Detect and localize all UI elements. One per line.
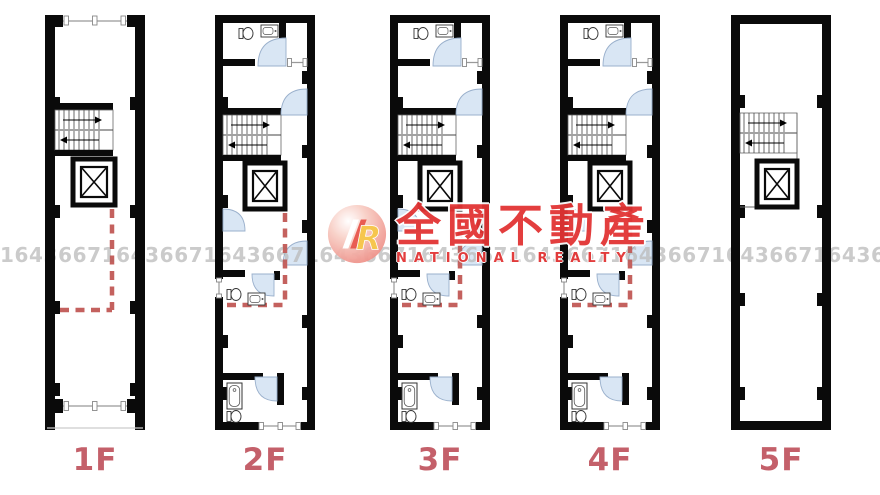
wall-pilaster [647, 145, 652, 158]
toilet-icon [227, 289, 241, 301]
toilet-icon [239, 28, 253, 40]
bathtub-icon [572, 383, 587, 409]
sink-icon [606, 25, 623, 37]
stairs [740, 113, 797, 153]
interior-wall [223, 59, 255, 66]
window-mullion [392, 294, 397, 298]
wall-pilaster [740, 293, 745, 306]
window-marker [288, 59, 308, 67]
interior-wall [398, 270, 420, 277]
window-mullion [392, 278, 397, 282]
door-arc [600, 377, 622, 401]
wall-pilaster [740, 95, 745, 108]
wall-pilaster [398, 335, 403, 348]
interior-wall [223, 270, 245, 277]
wall-pilaster [477, 71, 482, 84]
window-mullion [121, 402, 126, 411]
window-mullion [64, 402, 69, 411]
stairs [398, 115, 456, 155]
wall-pilaster [302, 315, 307, 328]
door-arc [255, 377, 277, 401]
interior-wall [398, 155, 456, 161]
window-marker [604, 423, 646, 430]
interior-wall [619, 271, 625, 280]
interior-wall [622, 373, 629, 405]
window-mullion [562, 278, 567, 282]
window-marker [390, 278, 398, 298]
wall-pilaster [302, 387, 307, 400]
window-mullion [121, 16, 126, 25]
door-arc [433, 38, 461, 66]
window-mullion [296, 423, 301, 430]
brand-name-english: NATIONAL REALTY [396, 251, 651, 266]
interior-wall [454, 23, 461, 38]
interior-wall [274, 271, 280, 280]
wall-pilaster [223, 335, 228, 348]
sink-icon [593, 293, 610, 305]
plan-svg [215, 15, 315, 430]
interior-wall [55, 150, 113, 156]
storefront-window [47, 16, 143, 428]
window-mullion [604, 423, 609, 430]
elevator-icon [757, 161, 797, 207]
interior-wall [568, 59, 600, 66]
watermark-brand: R 全國不動產 NATIONAL REALTY [326, 202, 651, 266]
wall-pilaster [477, 387, 482, 400]
window-mullion [278, 423, 283, 430]
wall-pilaster [647, 71, 652, 84]
wall-pilaster [740, 387, 745, 400]
brand-text: 全國不動產 NATIONAL REALTY [396, 202, 651, 266]
wall-pilaster [55, 383, 60, 396]
door-arc [626, 89, 652, 115]
wall-pilaster [817, 293, 822, 306]
toilet-icon [402, 289, 416, 301]
wall-pilaster [130, 301, 135, 314]
floorplan-drawing-2f [215, 15, 315, 430]
window-marker [633, 59, 653, 67]
stairs [568, 115, 626, 155]
wall-pilaster [130, 205, 135, 218]
sink-icon [248, 293, 265, 305]
floor-label-4f: 4F [560, 442, 660, 478]
interior-wall [223, 155, 281, 161]
window-marker [463, 59, 483, 67]
window-mullion [623, 423, 628, 430]
door-arc [281, 89, 307, 115]
window-mullion [217, 294, 222, 298]
window-marker [560, 278, 568, 298]
window-mullion [93, 402, 98, 411]
floor-label-1f: 1F [45, 442, 145, 478]
wall-pilaster [302, 71, 307, 84]
window-mullion [288, 59, 292, 67]
toilet-icon [414, 28, 428, 40]
window-mullion [648, 59, 652, 67]
wall-pilaster [223, 195, 228, 208]
wall-pilaster [647, 387, 652, 400]
door-arc [603, 38, 631, 66]
elevator-icon [245, 163, 285, 209]
brand-logo-icon: R [326, 203, 388, 265]
interior-wall [223, 108, 281, 115]
logo-letter-r: R [356, 219, 381, 258]
floor-label-5f: 5F [731, 442, 831, 478]
wall-pilaster [817, 387, 822, 400]
wall-pilaster [302, 220, 307, 233]
plan-svg [45, 15, 145, 430]
interior-wall [277, 373, 284, 405]
wall-pilaster [817, 95, 822, 108]
window-marker [434, 423, 476, 430]
wall-pilaster [130, 97, 135, 110]
wall-outline [731, 15, 831, 430]
window-mullion [633, 59, 637, 67]
wall-pilaster [568, 335, 573, 348]
wall-pilaster [647, 315, 652, 328]
interior-wall [449, 271, 455, 280]
interior-wall [568, 108, 626, 115]
sink-icon [423, 293, 440, 305]
window-mullion [453, 423, 458, 430]
window-mullion [93, 16, 98, 25]
floorplan-drawing-5f [731, 15, 831, 430]
floor-label-2f: 2F [215, 442, 315, 478]
wall-pilaster [55, 301, 60, 314]
elevator-icon [73, 159, 115, 205]
door-arc [456, 89, 482, 115]
window-mullion [478, 59, 482, 67]
wall-outline [45, 15, 145, 430]
window-marker [215, 278, 223, 298]
wall-pilaster [477, 145, 482, 158]
interior-wall [398, 59, 430, 66]
window-mullion [259, 423, 264, 430]
window-mullion [562, 294, 567, 298]
toilet-icon [584, 28, 598, 40]
interior-wall [568, 155, 626, 161]
window-mullion [303, 59, 307, 67]
window-mullion [64, 16, 69, 25]
interior-wall [55, 103, 113, 110]
sink-icon [436, 25, 453, 37]
interior-wall [398, 108, 456, 115]
floorplan-drawing-1f [45, 15, 145, 430]
floor-label-3f: 3F [390, 442, 490, 478]
door-arc [430, 377, 452, 401]
toilet-icon [572, 411, 586, 423]
window-mullion [434, 423, 439, 430]
toilet-icon [402, 411, 416, 423]
interior-wall [279, 23, 286, 38]
wall-pilaster [130, 383, 135, 396]
wall-pilaster [302, 145, 307, 158]
interior-wall [624, 23, 631, 38]
wall-pilaster [55, 205, 60, 218]
interior-wall [452, 373, 459, 405]
door-arc [223, 209, 245, 231]
interior-wall [568, 270, 590, 277]
brand-name-chinese: 全國不動產 [396, 202, 651, 249]
toilet-icon [227, 411, 241, 423]
stairs [223, 115, 281, 155]
window-mullion [471, 423, 476, 430]
bathtub-icon [402, 383, 417, 409]
wall-pilaster [477, 315, 482, 328]
toilet-icon [572, 289, 586, 301]
window-mullion [217, 278, 222, 282]
window-mullion [641, 423, 646, 430]
window-mullion [463, 59, 467, 67]
stairs [55, 110, 113, 150]
door-arc [258, 38, 286, 66]
bathtub-icon [227, 383, 242, 409]
wall-pilaster [817, 205, 822, 218]
floorplan-sheet: 1F 2F [0, 0, 880, 495]
sink-icon [261, 25, 278, 37]
plan-svg [731, 15, 831, 430]
window-marker [259, 423, 301, 430]
